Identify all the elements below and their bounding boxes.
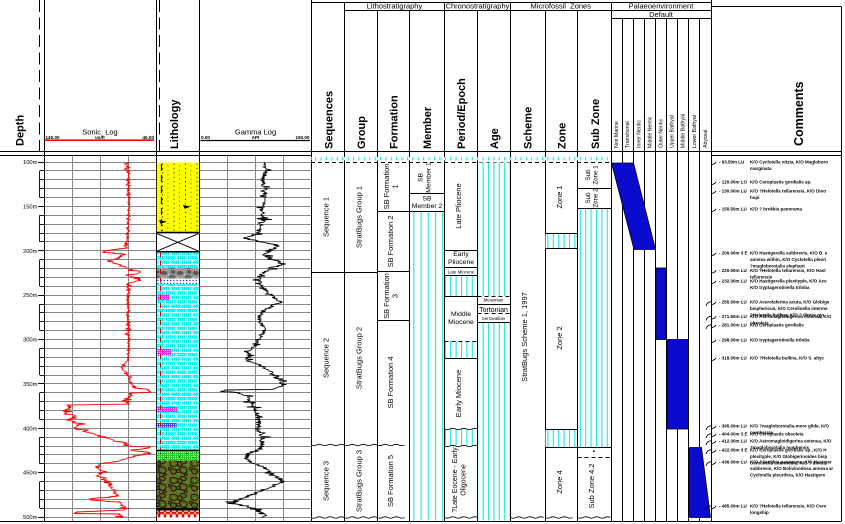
svg-text:Late Miocene: Late Miocene	[448, 270, 475, 275]
svg-text:- 281.00m LU: - 281.00m LU	[719, 323, 747, 328]
svg-text:Tortonian: Tortonian	[479, 307, 508, 314]
svg-text:Member 2: Member 2	[412, 203, 443, 210]
svg-text:- 150.50m LU: - 150.50m LU	[719, 207, 747, 212]
svg-text:- 395.00m LU: - 395.00m LU	[719, 424, 747, 429]
svg-text:Pliocene: Pliocene	[448, 259, 474, 266]
svg-text:- 271.50m LU: - 271.50m LU	[719, 314, 747, 319]
svg-text:StratBugs Group 1: StratBugs Group 1	[355, 186, 364, 248]
svg-text:200m: 200m	[23, 249, 38, 255]
svg-text:SB: SB	[422, 196, 432, 203]
svg-text:K/O tryptagerotinella triloba: K/O tryptagerotinella triloba	[750, 338, 810, 343]
svg-text:Zone 1: Zone 1	[555, 185, 564, 208]
svg-text:K/O ? brokkia panorama, K/O Ha: K/O ? brokkia panorama, K/O Hastiger	[750, 460, 832, 465]
svg-text:Outer Neritic: Outer Neritic	[659, 118, 665, 148]
svg-text:Sequence 1: Sequence 1	[322, 197, 331, 237]
svg-text:- 412.00m LU: - 412.00m LU	[719, 439, 747, 444]
svg-text:Sequence 3: Sequence 3	[322, 461, 331, 501]
svg-text:450m: 450m	[23, 471, 38, 477]
svg-text:Scheme: Scheme	[523, 107, 535, 149]
svg-text:- 200.00m 3 E: - 200.00m 3 E	[719, 251, 748, 256]
svg-text:K/O Astromagloidigerina extens: K/O Astromagloidigerina extensa, K/O	[750, 314, 832, 319]
svg-text:K/O Ceroplastis gordialis: K/O Ceroplastis gordialis	[750, 323, 804, 328]
svg-text:Default: Default	[649, 10, 674, 19]
svg-text:- 93.50m LU: - 93.50m LU	[719, 160, 744, 165]
svg-text:K/O Acerolaferina acuta, K/O G: K/O Acerolaferina acuta, K/O Globige	[750, 300, 830, 305]
svg-text:Zone 2: Zone 2	[593, 188, 600, 208]
svg-text:- 485.00m LU: - 485.00m LU	[719, 504, 747, 509]
svg-text:Serravallian: Serravallian	[482, 316, 506, 321]
svg-text:- 422.00m 3 E: - 422.00m 3 E	[719, 448, 748, 453]
svg-text:Sequence 2: Sequence 2	[322, 338, 331, 378]
svg-text:3: 3	[391, 294, 400, 298]
svg-text:0.00: 0.00	[201, 135, 210, 140]
svg-text:- 255.00m LU: - 255.00m LU	[719, 300, 747, 305]
svg-text:40.00: 40.00	[143, 135, 155, 140]
svg-text:150m: 150m	[23, 204, 38, 210]
svg-text:- 404.00m 3 E: - 404.00m 3 E	[719, 432, 748, 437]
svg-text:Zone 1: Zone 1	[593, 165, 600, 185]
svg-text:Middle Neritic: Middle Neritic	[647, 116, 653, 148]
svg-text:- 436.00m LU: - 436.00m LU	[719, 460, 747, 465]
svg-text:Member: Member	[422, 106, 434, 149]
svg-text:- 318.00m LU: - 318.00m LU	[719, 356, 747, 361]
svg-text:Messinian: Messinian	[484, 298, 504, 303]
svg-text:Middle Bathyal: Middle Bathyal	[681, 114, 687, 148]
svg-text:K/O ?magloborotalia-more glide: K/O ?magloborotalia-more glide, K/O	[750, 424, 830, 429]
svg-text:- 232.00m LU: - 232.00m LU	[719, 279, 747, 284]
svg-text:Sequences: Sequences	[324, 91, 336, 149]
svg-text:Early Miocene: Early Miocene	[454, 370, 463, 418]
svg-text:Age: Age	[489, 128, 501, 149]
svg-text:hopi: hopi	[750, 195, 760, 200]
svg-text:bisphericus, K/O Cerolinella i: bisphericus, K/O Cerolinella interme	[750, 306, 828, 311]
svg-text:SB Formation 4: SB Formation 4	[386, 356, 395, 408]
svg-text:- 130.00m LU: - 130.00m LU	[719, 189, 747, 194]
svg-text:250m: 250m	[23, 293, 38, 299]
svg-text:150.00: 150.00	[295, 135, 309, 140]
svg-text:Non Marine: Non Marine	[614, 121, 620, 148]
svg-text:1: 1	[391, 184, 400, 188]
svg-text:K/O Ceroplastis obsoleta: K/O Ceroplastis obsoleta	[750, 432, 804, 437]
svg-text:Sub Zone: Sub Zone	[590, 99, 602, 149]
svg-text:K/O Hastigerella plexityple, K: K/O Hastigerella plexityple, K/O Ace	[750, 279, 827, 284]
svg-text:Upper Bathyal: Upper Bathyal	[670, 115, 676, 148]
svg-text:us/ft: us/ft	[95, 135, 105, 140]
svg-text:StratBugs Group 3: StratBugs Group 3	[355, 450, 364, 512]
svg-text:SB: SB	[418, 173, 425, 183]
svg-text:Sub Zone 4.2: Sub Zone 4.2	[587, 463, 596, 508]
svg-text:Sub: Sub	[585, 169, 592, 181]
svg-text:Abyssal: Abyssal	[703, 130, 709, 148]
svg-text:SB Formation 5: SB Formation 5	[386, 455, 395, 507]
svg-text:Microfossil Zones: Microfossil Zones	[531, 2, 592, 11]
svg-text:- 120.00m LO: - 120.00m LO	[719, 180, 748, 185]
svg-text:Comments: Comments	[792, 81, 806, 146]
svg-text:marginata: marginata	[750, 166, 772, 171]
svg-text:longship: longship	[750, 510, 769, 515]
svg-text:Formation: Formation	[389, 95, 401, 149]
svg-text:K/O ?Helotella tellarensis, K/: K/O ?Helotella tellarensis, K/O Cero	[750, 504, 827, 509]
svg-text:Zone: Zone	[557, 123, 569, 149]
svg-text:annexa within, K/O Cyclotella: annexa within, K/O Cyclotella pleuri	[750, 257, 826, 262]
svg-text:400m: 400m	[23, 426, 38, 432]
svg-text:- 220.00m LU: - 220.00m LU	[719, 268, 747, 273]
svg-text:Lithology: Lithology	[169, 99, 181, 149]
svg-text:- 298.00m LU: - 298.00m LU	[719, 338, 747, 343]
svg-text:subbrevis, K/O Bolivinodosa an: subbrevis, K/O Bolivinodosa annexa w	[750, 466, 833, 471]
svg-text:Zone 4: Zone 4	[555, 470, 564, 493]
svg-text:Chronostratigraphy: Chronostratigraphy	[446, 2, 510, 11]
svg-text:Cyclotella pleurifera, K/O Has: Cyclotella pleurifera, K/O Hastigere	[750, 473, 826, 478]
svg-text:Lithostratigraphy: Lithostratigraphy	[367, 2, 423, 11]
svg-text:StratBugs Scheme 1, 1997: StratBugs Scheme 1, 1997	[520, 292, 529, 382]
svg-text:K/O Hastigerella subbrevis, K/: K/O Hastigerella subbrevis, K/O B. s	[750, 251, 828, 256]
svg-text:plexityple, K/O Globigerinoide: plexityple, K/O Globigerinoides bisp	[750, 454, 828, 459]
svg-text:K/O Astromagloidigerina extens: K/O Astromagloidigerina extensa, K/O	[750, 439, 832, 444]
svg-text:Lower Bathyal: Lower Bathyal	[692, 115, 698, 148]
svg-text:K/O Ceroplastis gordialis sp.: K/O Ceroplastis gordialis sp.	[750, 180, 812, 185]
svg-text:K/O ?Helotella bullina, K/O S.: K/O ?Helotella bullina, K/O S. altyc	[750, 356, 825, 361]
svg-text:Inner Neritic: Inner Neritic	[636, 120, 642, 148]
svg-text:Middle: Middle	[451, 311, 471, 318]
svg-text:Early: Early	[453, 251, 469, 258]
svg-text:Member 1: Member 1	[426, 162, 433, 193]
svg-text:K/O tryptagerotinella triloba: K/O tryptagerotinella triloba	[750, 285, 810, 290]
svg-text:500m: 500m	[23, 515, 38, 521]
svg-text:API: API	[252, 135, 260, 140]
svg-text:K/O Cyclotella nitzia, K/O Mag: K/O Cyclotella nitzia, K/O Magloboro	[750, 160, 828, 165]
svg-text:Transitional: Transitional	[625, 121, 631, 148]
svg-text:K/O ? brokkia panorama: K/O ? brokkia panorama	[750, 207, 803, 212]
svg-text:Depth: Depth	[15, 115, 27, 146]
svg-text:SB Formation 2: SB Formation 2	[386, 215, 395, 267]
svg-text:100m: 100m	[23, 160, 38, 166]
svg-text:Sub: Sub	[585, 192, 592, 204]
svg-text:300m: 300m	[23, 338, 38, 344]
svg-text:Miocene: Miocene	[448, 319, 474, 326]
svg-text:350m: 350m	[23, 382, 38, 388]
svg-text:Group: Group	[356, 116, 368, 149]
svg-text:K/O ?Helotella tellarensis, K/: K/O ?Helotella tellarensis, K/O Dino	[750, 189, 826, 194]
svg-text:Late Pliocene: Late Pliocene	[454, 183, 463, 228]
svg-text:Oligocene: Oligocene	[461, 464, 468, 496]
svg-text:K/O Ceroplastis gordialis sp.,: K/O Ceroplastis gordialis sp., K/O H	[750, 448, 827, 453]
svg-text:Zone 2: Zone 2	[555, 326, 564, 349]
svg-text:Period/Epoch: Period/Epoch	[456, 78, 468, 149]
svg-text:StratBugs Group 2: StratBugs Group 2	[355, 327, 364, 389]
svg-text:140.00: 140.00	[46, 135, 60, 140]
svg-text:K/O ?Helotella tellarensis, K/: K/O ?Helotella tellarensis, K/O Hast	[750, 268, 826, 273]
svg-text:?Late Eocene - Early: ?Late Eocene - Early	[452, 447, 459, 513]
